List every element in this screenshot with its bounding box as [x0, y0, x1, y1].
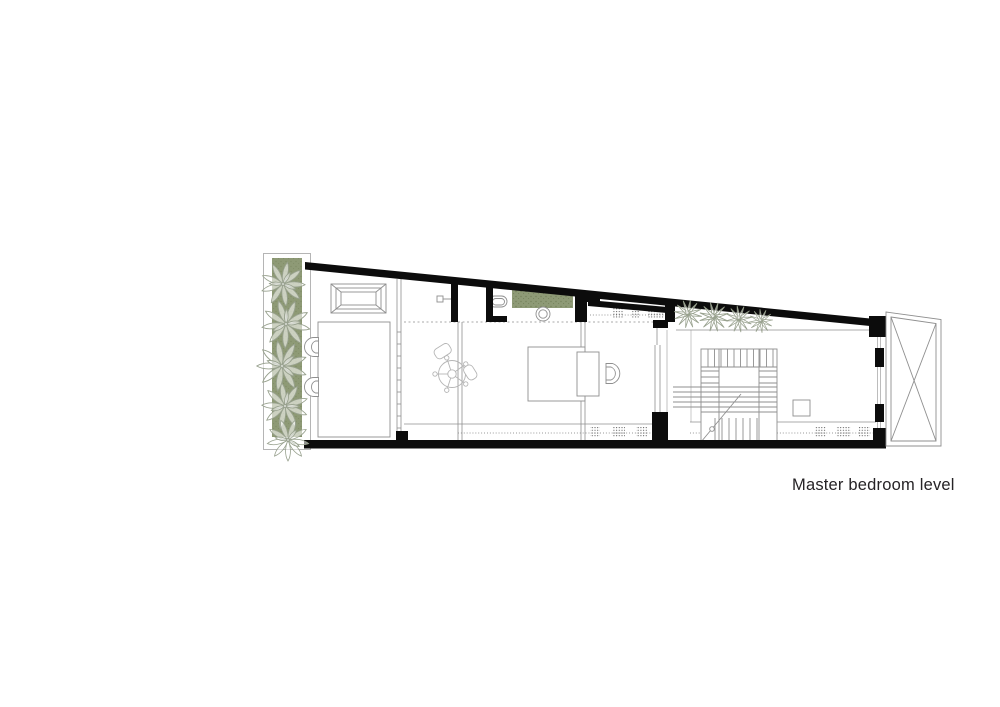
shelf-ticks	[397, 332, 401, 428]
sink-icon	[536, 307, 550, 321]
floor-plan-page: Master bedroom level	[0, 0, 1000, 707]
study-table	[318, 322, 390, 437]
terrace-x-box	[886, 312, 941, 446]
staircase	[673, 349, 777, 443]
office-chair-icon	[433, 342, 479, 393]
bed	[528, 347, 599, 401]
chair-icon	[305, 378, 319, 397]
floor-plan-drawing	[0, 0, 1000, 707]
plan-caption: Master bedroom level	[792, 476, 955, 495]
storage-box	[793, 400, 810, 416]
wall-fixture	[437, 296, 451, 302]
chair-icon	[305, 338, 319, 357]
armchair-icon	[606, 364, 620, 384]
skylight	[331, 284, 386, 313]
